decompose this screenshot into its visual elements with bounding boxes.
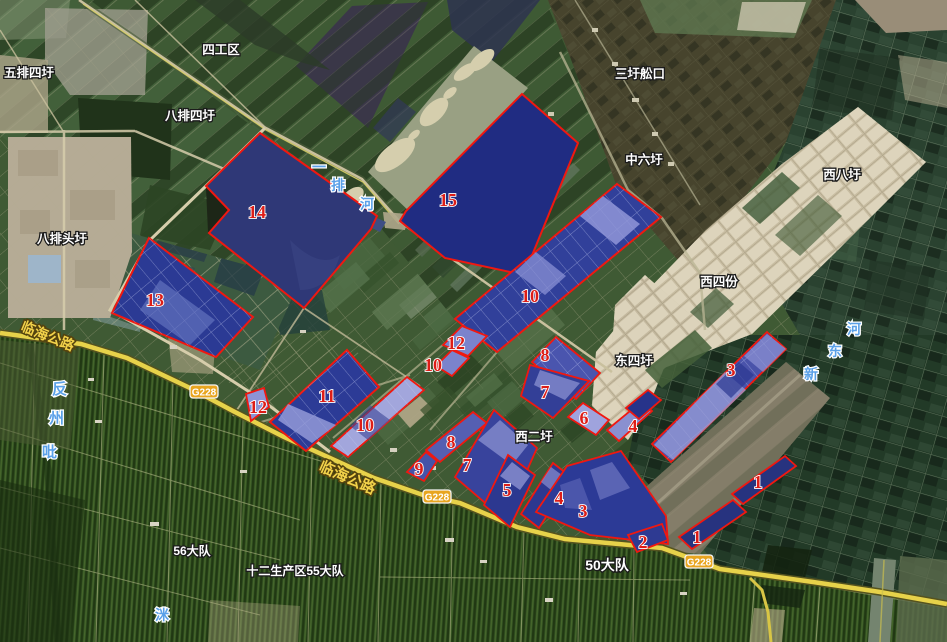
svg-text:8: 8 xyxy=(541,345,550,365)
svg-text:东四圩: 东四圩 xyxy=(615,353,653,368)
svg-text:G228: G228 xyxy=(687,558,712,569)
svg-text:3: 3 xyxy=(579,501,588,521)
svg-text:4: 4 xyxy=(629,416,638,436)
svg-text:排: 排 xyxy=(331,177,345,193)
svg-text:G228: G228 xyxy=(192,388,217,399)
svg-text:中六圩: 中六圩 xyxy=(625,152,663,167)
svg-text:7: 7 xyxy=(463,455,472,475)
svg-text:50大队: 50大队 xyxy=(585,557,630,573)
svg-text:1: 1 xyxy=(693,527,702,547)
svg-text:10: 10 xyxy=(521,286,539,306)
svg-text:10: 10 xyxy=(424,355,442,375)
svg-text:1: 1 xyxy=(754,472,763,492)
svg-text:十二生产区55大队: 十二生产区55大队 xyxy=(246,563,344,578)
svg-text:7: 7 xyxy=(541,382,550,402)
svg-text:3: 3 xyxy=(727,360,736,380)
svg-text:14: 14 xyxy=(248,202,266,222)
svg-text:西四份: 西四份 xyxy=(700,274,738,289)
svg-text:洣: 洣 xyxy=(155,607,170,623)
svg-text:吡: 吡 xyxy=(42,444,57,461)
svg-text:八排四圩: 八排四圩 xyxy=(164,108,216,123)
svg-text:新: 新 xyxy=(804,366,818,382)
svg-text:五排四圩: 五排四圩 xyxy=(4,65,55,80)
svg-text:河: 河 xyxy=(360,196,374,212)
svg-text:八排头圩: 八排头圩 xyxy=(36,231,88,246)
svg-text:13: 13 xyxy=(146,290,164,310)
svg-text:西八圩: 西八圩 xyxy=(823,168,861,182)
svg-text:9: 9 xyxy=(415,459,424,479)
svg-text:一: 一 xyxy=(312,159,326,175)
svg-text:反: 反 xyxy=(52,381,67,398)
svg-text:56大队: 56大队 xyxy=(173,543,211,558)
svg-text:2: 2 xyxy=(639,532,648,552)
svg-text:8: 8 xyxy=(447,432,456,452)
svg-text:三圩舩口: 三圩舩口 xyxy=(615,66,665,81)
svg-text:G228: G228 xyxy=(425,493,450,504)
svg-text:5: 5 xyxy=(503,480,512,500)
svg-text:12: 12 xyxy=(447,333,465,353)
svg-text:15: 15 xyxy=(439,190,457,210)
svg-text:4: 4 xyxy=(555,488,564,508)
svg-text:州: 州 xyxy=(48,410,64,427)
svg-text:11: 11 xyxy=(318,386,335,406)
svg-text:东: 东 xyxy=(828,343,842,359)
svg-text:西二圩: 西二圩 xyxy=(515,430,553,444)
svg-text:12: 12 xyxy=(249,397,267,417)
svg-text:四工区: 四工区 xyxy=(202,43,240,57)
svg-text:6: 6 xyxy=(580,408,589,428)
svg-text:10: 10 xyxy=(356,415,374,435)
svg-text:河: 河 xyxy=(847,321,861,337)
